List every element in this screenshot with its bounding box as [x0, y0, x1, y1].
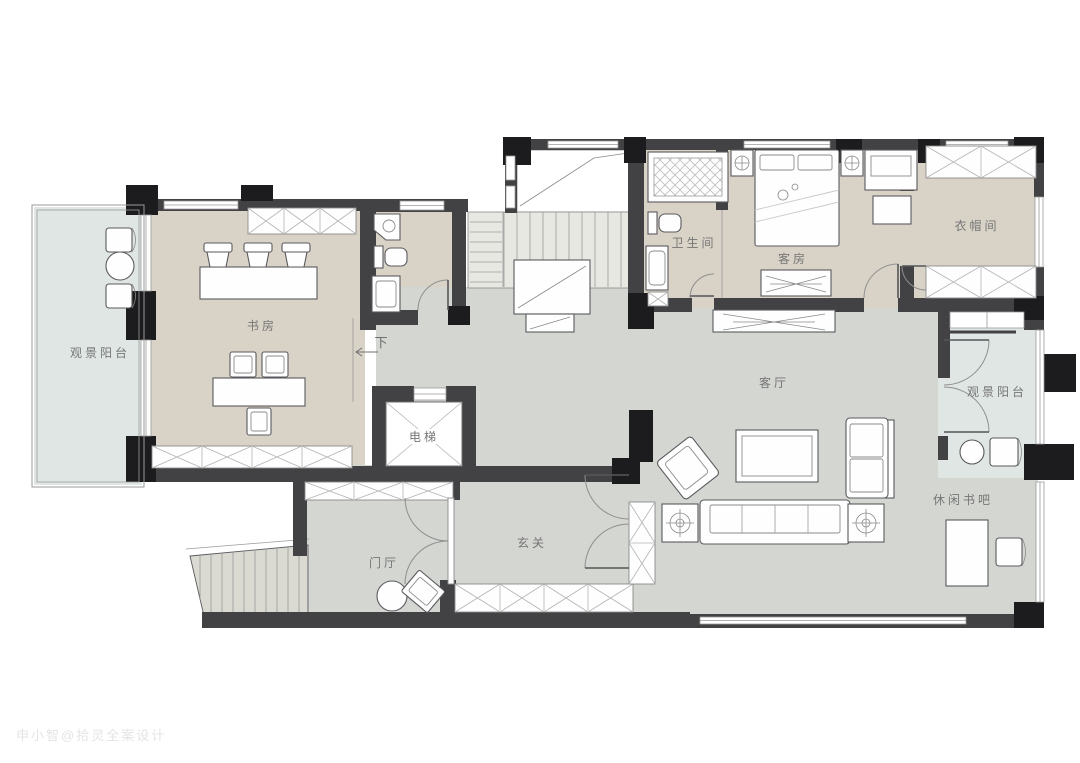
designer-watermark: 申小智@拾灵全案设计 — [16, 728, 166, 743]
room-label-entrance-hall: 玄关 — [517, 535, 547, 550]
balcony-round-table — [960, 440, 984, 464]
furniture-balcony-left — [106, 228, 136, 308]
toilet-tank — [648, 212, 657, 234]
room-label-balcony-left: 观景阳台 — [70, 345, 130, 360]
tall-cabinet — [629, 410, 653, 462]
balcony-round-table — [106, 252, 134, 280]
toilet-tank — [374, 246, 383, 268]
study-long-table — [200, 267, 317, 299]
room-label-reading-bar: 休闲书吧 — [933, 493, 993, 507]
balcony-counter — [938, 330, 950, 378]
study-bookshelf — [248, 208, 356, 234]
balcony-chair — [106, 228, 132, 252]
foyer-cabinet — [305, 482, 453, 500]
room-label-foyer: 门厅 — [369, 555, 399, 570]
balcony-chair — [106, 284, 132, 308]
room-label-guest-room: 客房 — [778, 251, 808, 266]
room-label-elevator: 电梯 — [409, 430, 439, 444]
room-label-cloakroom: 衣帽间 — [954, 218, 999, 233]
toilet — [385, 248, 407, 266]
foyer-round-table — [377, 581, 407, 611]
cloakroom-wardrobe-top — [926, 146, 1036, 178]
room-label-stairs-down: 下 — [374, 335, 387, 350]
side-table — [662, 504, 698, 542]
exterior-stairs — [186, 539, 309, 616]
dresser-stool — [873, 196, 911, 224]
entrance-storage-column — [629, 502, 655, 584]
shoe-cabinet — [455, 584, 633, 612]
furniture-balcony-right — [960, 438, 1022, 466]
cloakroom-wardrobe-bottom — [926, 266, 1036, 298]
sofa-two-seat — [846, 418, 894, 498]
room-label-study: 书房 — [247, 318, 277, 333]
balcony-chair — [990, 438, 1018, 466]
toilet — [659, 214, 681, 232]
room-label-balcony-right: 观景阳台 — [967, 384, 1027, 399]
bed-bench — [761, 270, 831, 296]
floor-plan-canvas: 观景阳台 书房 卫生间 客房 衣帽间 客厅 观景阳台 休闲书吧 玄关 门厅 电梯… — [0, 0, 1080, 763]
reading-desk — [946, 520, 988, 586]
pillow — [798, 155, 832, 170]
pillow — [760, 155, 794, 170]
room-label-guest-bathroom: 卫生间 — [671, 236, 716, 250]
sofa-long — [700, 500, 850, 544]
floor-plan-drawing: 观景阳台 书房 卫生间 客房 衣帽间 客厅 观景阳台 休闲书吧 玄关 门厅 电梯… — [0, 0, 1080, 763]
study-desk — [213, 378, 305, 406]
stair-void — [517, 150, 630, 212]
room-label-living-room: 客厅 — [759, 375, 789, 390]
study-low-cabinet — [152, 446, 352, 468]
side-table — [848, 504, 884, 542]
reading-chair — [996, 538, 1022, 566]
